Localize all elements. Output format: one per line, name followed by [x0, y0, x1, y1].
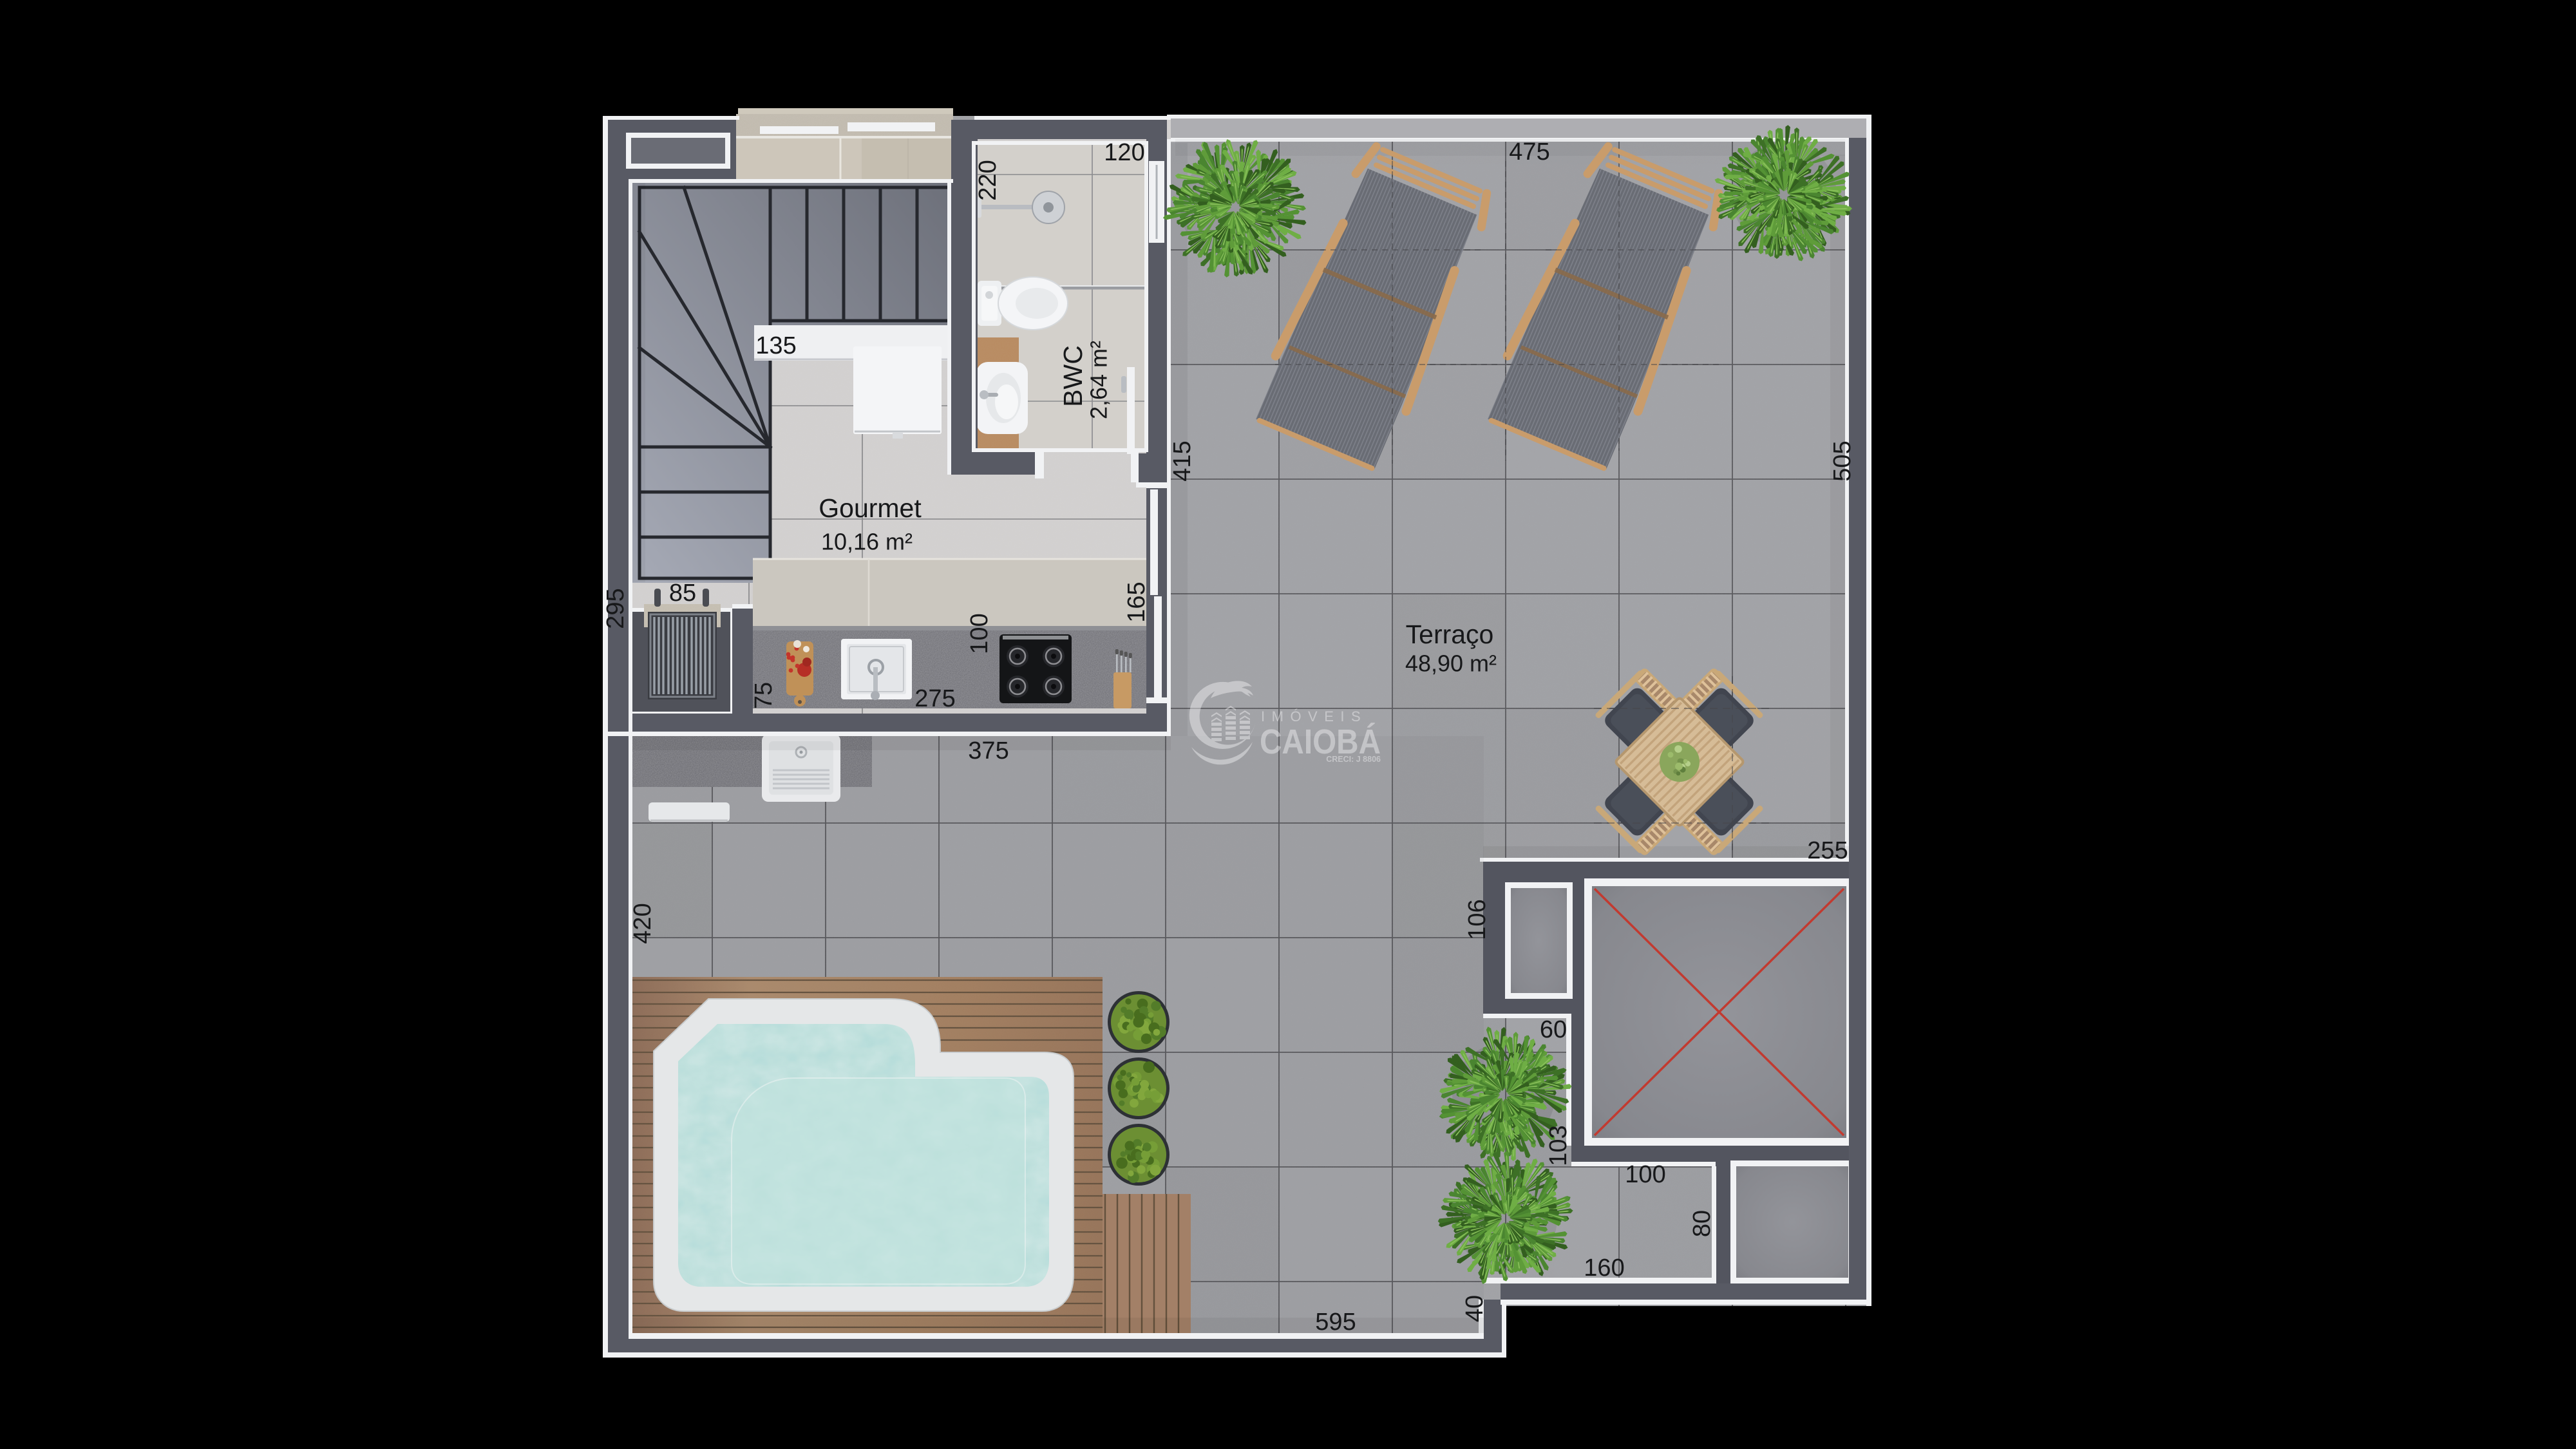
svg-text:BWC: BWC [1058, 345, 1088, 407]
svg-text:40: 40 [1461, 1295, 1488, 1322]
svg-text:80: 80 [1689, 1210, 1716, 1237]
svg-text:106: 106 [1464, 899, 1491, 940]
svg-text:75: 75 [750, 682, 777, 709]
svg-text:160: 160 [1584, 1255, 1624, 1282]
svg-text:420: 420 [629, 903, 656, 943]
svg-text:10,16 m²: 10,16 m² [821, 529, 913, 555]
svg-text:120: 120 [1104, 139, 1144, 166]
svg-text:375: 375 [968, 737, 1009, 764]
svg-text:275: 275 [914, 685, 955, 712]
svg-text:2,64 m²: 2,64 m² [1086, 341, 1112, 419]
svg-text:165: 165 [1123, 582, 1150, 622]
svg-text:CRECI: J 8806: CRECI: J 8806 [1326, 755, 1381, 764]
svg-text:100: 100 [1625, 1161, 1665, 1188]
svg-text:475: 475 [1509, 138, 1549, 166]
svg-text:100: 100 [966, 613, 993, 654]
svg-text:135: 135 [755, 332, 796, 359]
svg-text:60: 60 [1540, 1016, 1567, 1043]
svg-text:295: 295 [602, 588, 629, 629]
svg-text:Terraço: Terraço [1406, 620, 1494, 649]
svg-text:220: 220 [974, 160, 1001, 200]
svg-text:595: 595 [1315, 1309, 1356, 1336]
svg-text:415: 415 [1169, 440, 1196, 481]
svg-text:255: 255 [1807, 837, 1848, 864]
svg-text:Gourmet: Gourmet [819, 493, 922, 523]
svg-text:505: 505 [1829, 440, 1856, 481]
svg-text:103: 103 [1545, 1125, 1572, 1166]
svg-text:48,90 m²: 48,90 m² [1405, 650, 1497, 677]
svg-text:85: 85 [669, 580, 696, 607]
